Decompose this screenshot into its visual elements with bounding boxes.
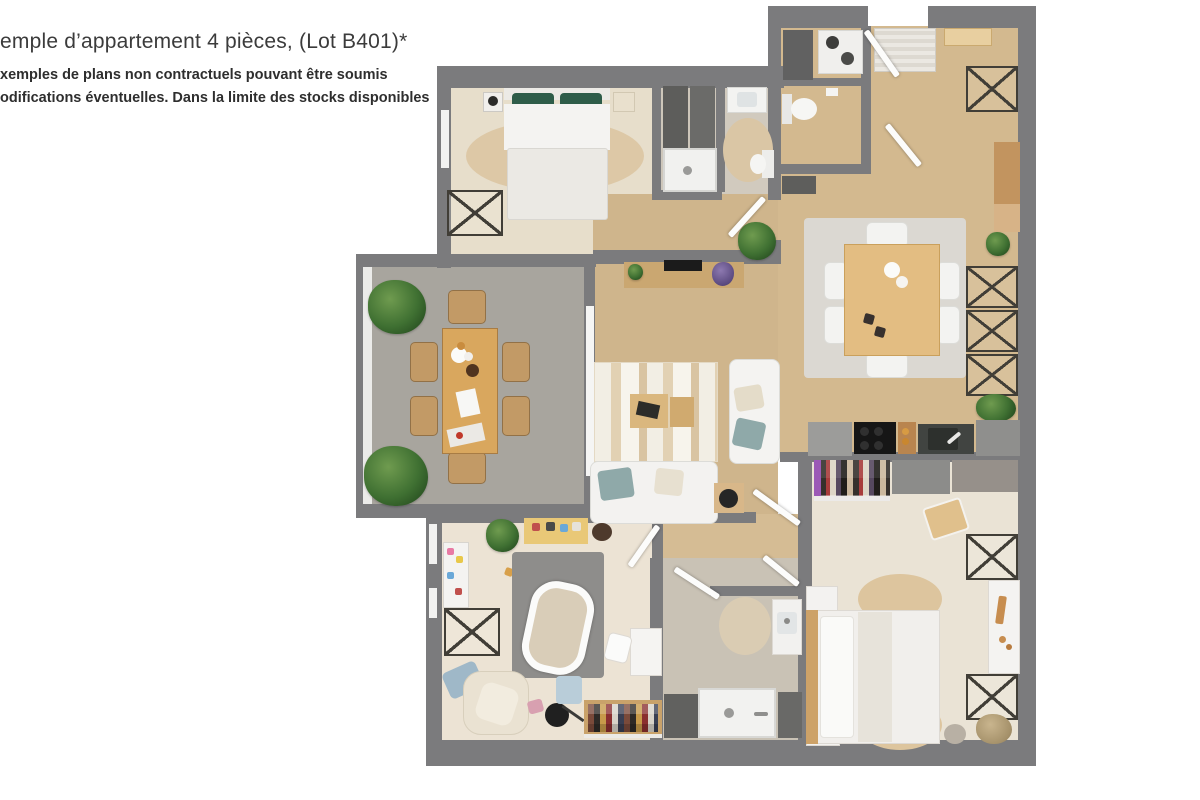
shoe-rack-shoes [588, 704, 658, 732]
kitchen-burner-3 [860, 441, 869, 450]
children-toy-3 [560, 524, 568, 532]
toyshelf-item-4 [455, 588, 462, 595]
balcony-chair-top [448, 290, 486, 324]
kitchen-fruit-2 [902, 438, 909, 445]
washer-drum-2 [841, 52, 854, 65]
master-closet-door-2 [952, 460, 1018, 492]
side-table-tray [719, 489, 738, 508]
master-desk [988, 580, 1020, 674]
wall-top-bedroom [437, 66, 784, 88]
balcony-chair-bottom [448, 452, 486, 484]
balcony-chair-right-1 [502, 342, 530, 382]
shower-fixture [754, 712, 768, 716]
sofa-v-cushion-beige [733, 384, 765, 412]
kitchen-burner-4 [874, 441, 883, 450]
children-pot [592, 523, 612, 541]
master-closet-door-1 [892, 460, 950, 494]
sofa-h-cushion-beige [654, 468, 685, 497]
balcony-croissant [457, 342, 465, 350]
disclaimer-line-2: odifications éventuelles. Dans la limite… [0, 87, 430, 110]
toyshelf-item-3 [447, 572, 454, 579]
wall-right [1018, 6, 1036, 764]
bathroom-mat-left [664, 694, 698, 738]
bedroom1-lamp [488, 96, 498, 106]
dining-table [844, 244, 940, 356]
shoe-rack-front [584, 734, 662, 738]
tv-plant-small [628, 264, 643, 280]
kitchen-burner-1 [860, 427, 869, 436]
wall-shower-left [652, 82, 661, 194]
master-closet-clothes [814, 460, 890, 498]
bedroom1-sheet [504, 104, 610, 150]
master-desk-dot-2 [1006, 644, 1012, 650]
children-desk [630, 628, 662, 676]
shower-drain-1 [683, 166, 692, 175]
bathroom-rug [719, 597, 771, 655]
children-toy-4 [572, 522, 581, 531]
kitchen-fruit-1 [902, 428, 909, 435]
hall-plant [976, 394, 1016, 422]
bedroom1-wardrobe [447, 190, 503, 236]
laundry-mat-1 [663, 86, 688, 148]
bedroom1-nightstand-right [613, 92, 635, 112]
disclaimer-line-1: xemples de plans non contractuels pouvan… [0, 64, 430, 87]
sliding-door [586, 306, 594, 476]
wall-bath-top [710, 586, 798, 596]
wall-bottom [426, 740, 1036, 766]
tv [664, 260, 702, 271]
wc2-basin [737, 92, 757, 107]
wc1-mat [782, 176, 816, 194]
kitchen-burner-2 [874, 427, 883, 436]
master-pouf [944, 724, 966, 744]
balcony-chair-right-2 [502, 396, 530, 436]
children-toy-2 [546, 522, 555, 531]
entry-wardrobe [966, 66, 1018, 112]
dining-plate-2 [896, 276, 908, 288]
side-table-1 [670, 397, 694, 427]
kitchen-cabinet-right [976, 420, 1020, 456]
children-toy-1 [532, 523, 540, 531]
balcony-cup [464, 352, 473, 361]
wall-balcony-top [356, 254, 596, 267]
kitchen-cabinet-left [808, 422, 852, 456]
children-wardrobe [444, 608, 500, 656]
wall-top-right-a [768, 6, 868, 28]
master-bed-headboard [806, 610, 818, 744]
shower-drain-2 [724, 708, 734, 718]
master-closet-bar [814, 496, 890, 501]
laundry-mat-2 [690, 86, 715, 148]
balcony-plant-1 [368, 280, 426, 334]
header-text-block: emple d’appartement 4 pièces, (Lot B401)… [0, 30, 430, 110]
entry-desk [994, 142, 1020, 206]
sofa-v-cushion-teal [731, 417, 766, 451]
corner-plant [738, 222, 776, 260]
floor-plan [0, 0, 1200, 800]
bathroom-mat-right [778, 692, 802, 738]
balcony-plant-2 [364, 446, 428, 506]
wc1-shelf [826, 88, 838, 96]
master-wardrobe-1 [966, 534, 1018, 580]
master-closet-accent [814, 460, 821, 498]
plan-title: emple d’appartement 4 pièces, (Lot B401)… [0, 30, 430, 54]
wc2-toilet-bowl [750, 154, 766, 174]
bathroom-faucet [784, 618, 790, 624]
dining-plate-1 [884, 262, 900, 278]
wc1-toilet-bowl [791, 98, 817, 120]
washer [818, 30, 863, 74]
page: emple d’appartement 4 pièces, (Lot B401)… [0, 0, 1200, 800]
balcony-bowl [466, 364, 479, 377]
master-nightstand-top [806, 586, 838, 612]
children-bin [556, 676, 582, 704]
wall-top-right-b [928, 6, 1020, 28]
toyshelf-item-2 [456, 556, 463, 563]
children-plant [486, 519, 519, 552]
entry-desk-return [994, 204, 1020, 232]
window-children-b [429, 588, 437, 618]
entry-bench [944, 28, 992, 46]
washer-drum-1 [826, 36, 839, 49]
wall-wc2-left [716, 82, 725, 192]
bedroom1-duvet [507, 148, 608, 220]
master-desk-dot-1 [999, 636, 1006, 643]
toyshelf-item-1 [447, 548, 454, 555]
wall-wc-bottom [768, 164, 871, 174]
hall-wardrobe-2 [966, 310, 1018, 352]
entry-closet-mat [783, 30, 813, 80]
master-plant-dried [976, 714, 1012, 744]
sofa-h-cushion-teal [597, 467, 635, 501]
entry-plant [986, 232, 1010, 256]
hall-wardrobe-3 [966, 354, 1018, 396]
master-bed-pillows [820, 616, 854, 738]
hall-wardrobe-1 [966, 266, 1018, 308]
window-children-a [429, 524, 437, 564]
balcony-tray-dot [456, 432, 463, 439]
balcony-chair-left-1 [410, 342, 438, 382]
balcony-chair-left-2 [410, 396, 438, 436]
window-bedroom-1 [441, 110, 449, 168]
master-bed-duvet [858, 612, 892, 742]
